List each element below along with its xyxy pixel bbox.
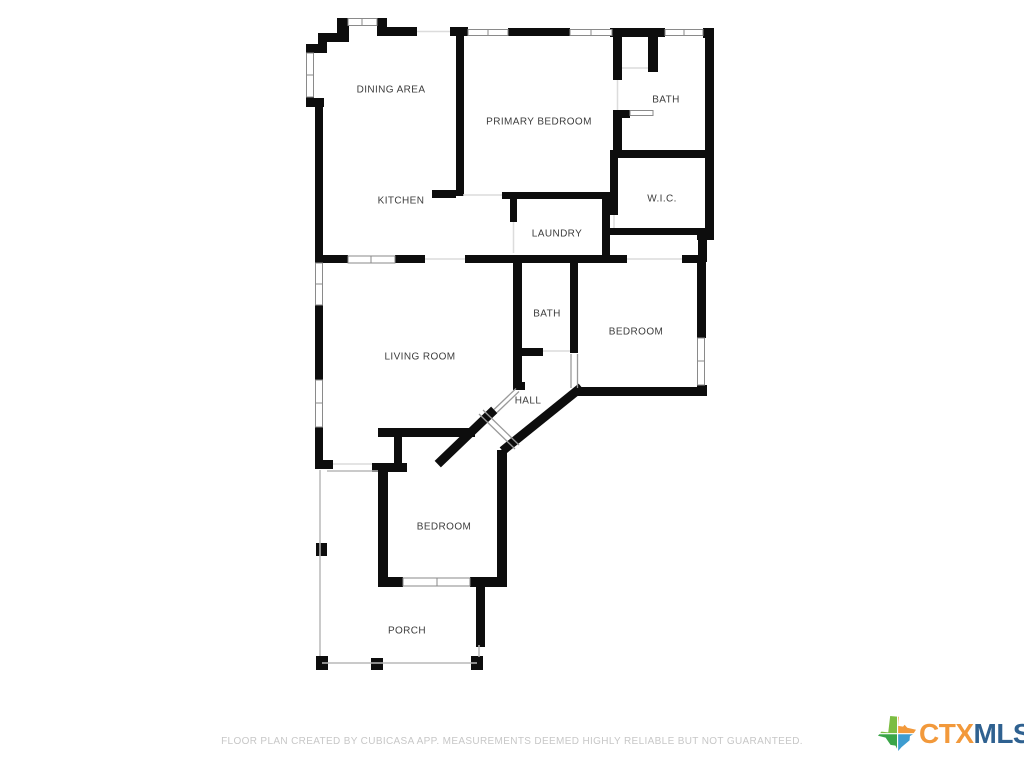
room-label-kitchen: KITCHEN: [378, 196, 425, 207]
floor-plan-page: DINING AREA PRIMARY BEDROOM BATH KITCHEN…: [0, 0, 1024, 768]
room-label-hall: HALL: [515, 396, 542, 407]
floor-plan-drawing: [0, 0, 1024, 768]
room-label-primary-bedroom: PRIMARY BEDROOM: [486, 117, 592, 128]
room-label-laundry: LAUNDRY: [532, 229, 582, 240]
ctxmls-logo: CTXMLS: [878, 716, 1024, 751]
texas-quad-top-right: [898, 716, 916, 733]
texas-icon: [878, 716, 916, 751]
room-label-living-room: LIVING ROOM: [384, 352, 455, 363]
room-label-bath-middle: BATH: [533, 309, 561, 320]
texas-quad-bottom-right: [898, 734, 916, 751]
room-label-wic: W.I.C.: [647, 194, 677, 205]
doors-group: [333, 32, 682, 465]
texas-quad-bottom-left: [878, 734, 897, 751]
room-label-bedroom-right: BEDROOM: [609, 327, 663, 338]
disclaimer: FLOOR PLAN CREATED BY CUBICASA APP. MEAS…: [0, 736, 1024, 747]
logo-text-primary: CTX: [919, 718, 974, 749]
logo-text-secondary: MLS: [974, 718, 1024, 749]
room-label-porch: PORCH: [388, 626, 426, 637]
texas-quad-top-left: [878, 716, 897, 733]
room-label-dining-area: DINING AREA: [357, 85, 426, 96]
door-leaf: [630, 111, 653, 116]
room-label-bath-top: BATH: [652, 95, 680, 106]
room-label-bedroom-bottom: BEDROOM: [417, 522, 471, 533]
